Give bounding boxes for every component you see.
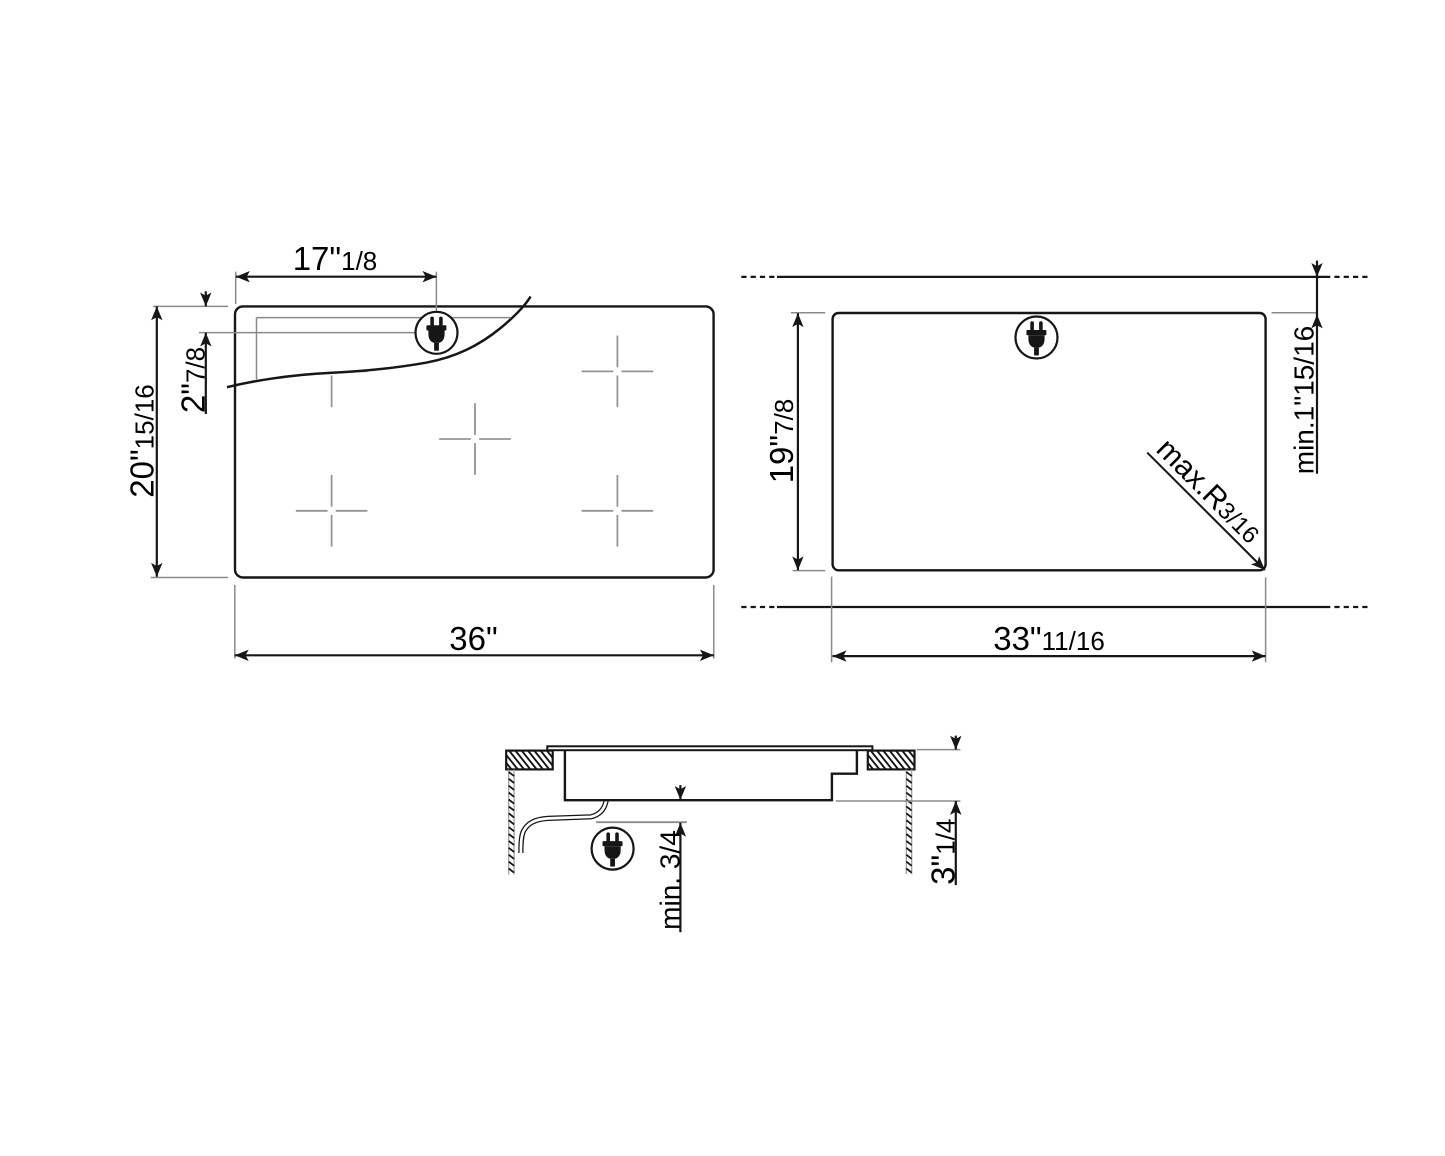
svg-text:3"1/4: 3"1/4: [925, 819, 962, 885]
svg-text:20"15/16: 20"15/16: [124, 384, 161, 498]
svg-text:min. 3/4: min. 3/4: [655, 830, 686, 930]
svg-text:36": 36": [449, 620, 497, 657]
svg-text:19"7/8: 19"7/8: [763, 399, 800, 484]
svg-text:17"1/8: 17"1/8: [293, 240, 378, 277]
svg-text:33"11/16: 33"11/16: [993, 620, 1105, 657]
svg-text:2"7/8: 2"7/8: [175, 347, 212, 413]
svg-text:min.1"15/16: min.1"15/16: [1289, 326, 1320, 474]
